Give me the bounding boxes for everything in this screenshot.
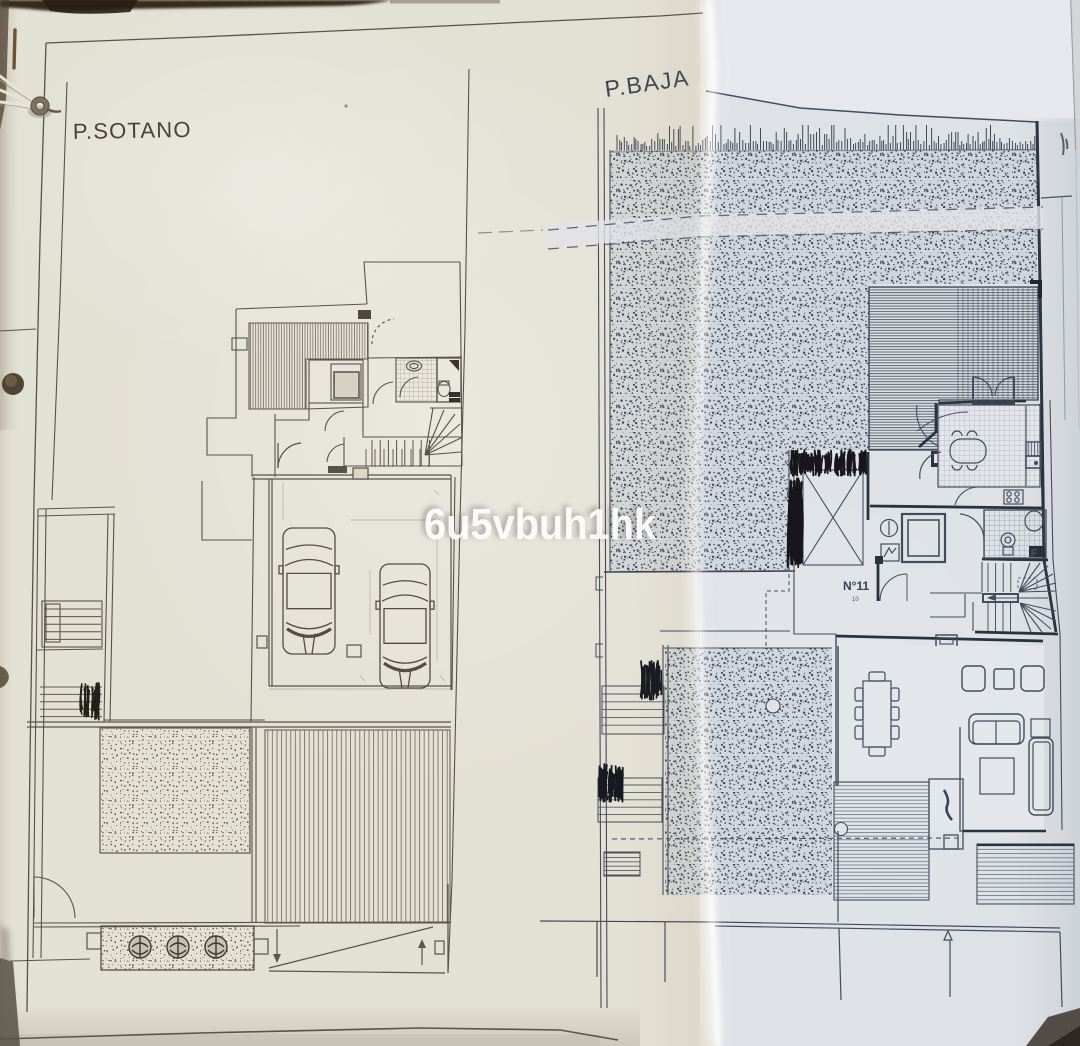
svg-text:F: F [1031,548,1037,558]
svg-text:P.SOTANO: P.SOTANO [73,117,192,144]
svg-text:10: 10 [852,597,859,603]
svg-text:6u5vbuh1hk: 6u5vbuh1hk [424,500,656,549]
svg-text:N°11: N°11 [843,579,869,593]
